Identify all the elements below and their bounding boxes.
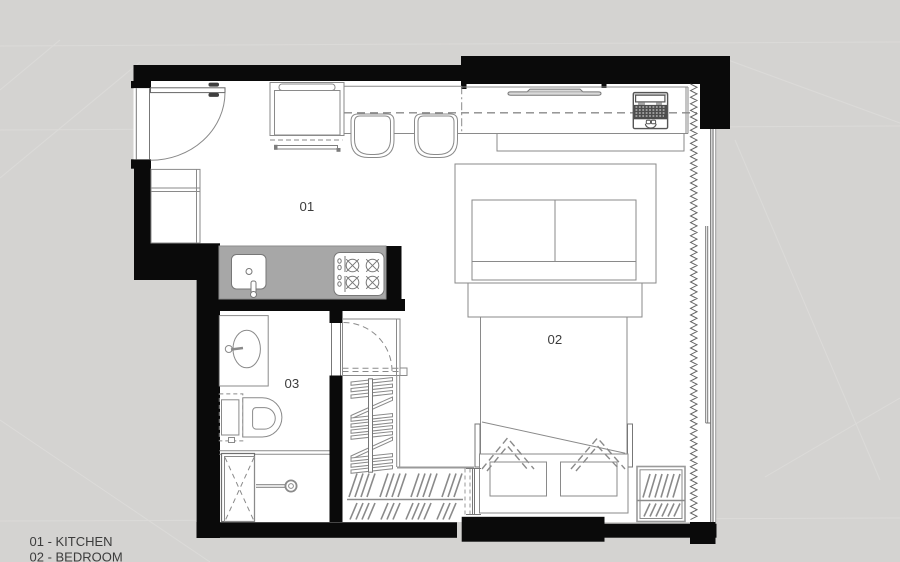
svg-text:02: 02: [548, 332, 563, 347]
svg-text:03: 03: [285, 376, 300, 391]
svg-text:01 - KITCHEN: 01 - KITCHEN: [30, 534, 113, 549]
svg-text:01: 01: [300, 199, 315, 214]
svg-text:02 - BEDROOM: 02 - BEDROOM: [30, 550, 123, 562]
